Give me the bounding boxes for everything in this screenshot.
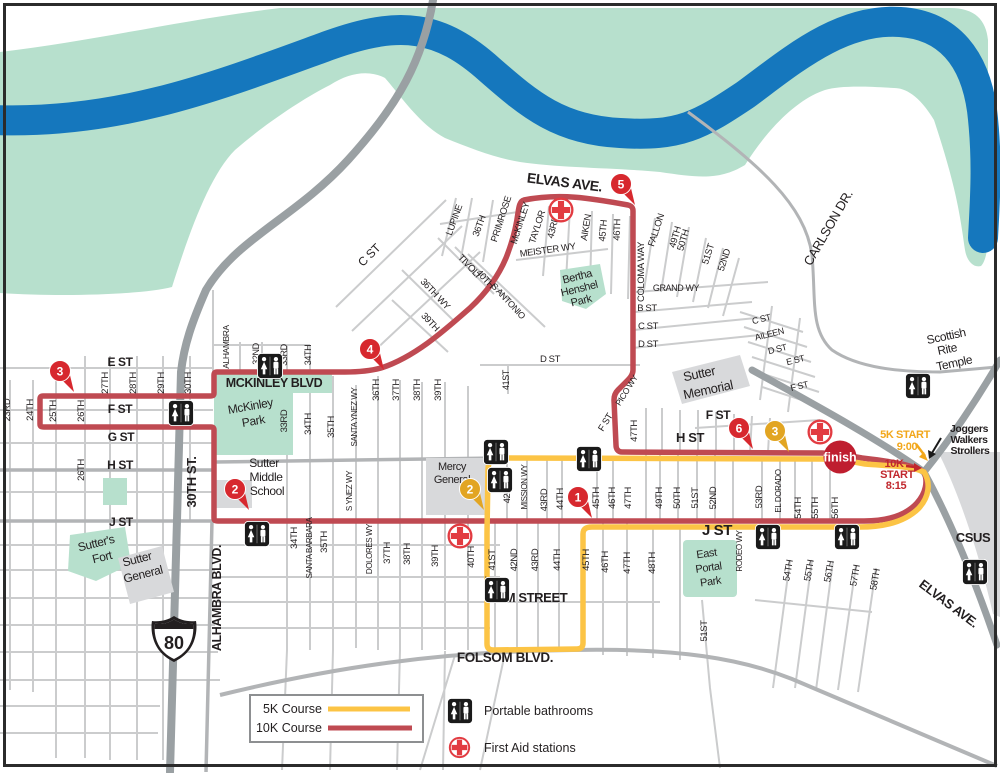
street-label: H ST xyxy=(676,430,704,445)
sutter-middle-label: Middle xyxy=(250,470,284,484)
legend-restroom-icon xyxy=(447,698,472,723)
map-canvas: ELVAS AVE.CARLSON DR.ScottishRiteTempleJ… xyxy=(0,0,1000,773)
folsom-blvd-label: FOLSOM BLVD. xyxy=(457,650,553,665)
street-label: G ST xyxy=(108,430,135,444)
street-label: D ST xyxy=(540,354,561,365)
race-course-map: ELVAS AVE.CARLSON DR.ScottishRiteTempleJ… xyxy=(0,0,1000,773)
street-label: 45TH xyxy=(597,219,610,242)
sutter-middle-label: School xyxy=(250,484,284,498)
street-label: 55TH xyxy=(810,497,821,519)
street-label: SANTA BARBARA xyxy=(305,516,314,578)
restroom-icon xyxy=(905,373,930,398)
street-label: 50TH xyxy=(672,487,683,509)
start-5k-label: 5K START xyxy=(880,429,930,441)
street-label: 47TH xyxy=(623,487,634,509)
street-label: 44TH xyxy=(555,488,566,510)
street-label: 46TH xyxy=(607,487,618,509)
street-label: 45TH xyxy=(591,487,602,509)
street-label: B ST xyxy=(637,303,657,314)
street-label: RODEO WY xyxy=(735,529,744,571)
street-label: 30TH xyxy=(183,372,194,394)
street-label: 43RD xyxy=(530,548,541,571)
street-label: ALHAMBRA xyxy=(221,324,231,368)
csus-label: CSUS xyxy=(956,530,991,545)
finish-marker: finish xyxy=(823,441,856,474)
street-label: 39TH xyxy=(430,545,441,567)
street-label: H ST xyxy=(107,458,134,472)
sutter-middle-label: Sutter xyxy=(249,456,279,470)
street-label: EL DORADO xyxy=(774,469,783,512)
first-aid-icon xyxy=(809,421,832,444)
finish-label: finish xyxy=(823,451,856,465)
pin-number: 6 xyxy=(736,422,743,436)
m-street-label: M STREET xyxy=(505,590,568,605)
street-label: 34TH xyxy=(289,527,300,549)
street-label: 47TH xyxy=(622,552,633,574)
street-label: 51ST xyxy=(699,620,710,642)
street-label: 53RD xyxy=(754,485,765,508)
street-label: 35TH xyxy=(319,531,330,553)
restroom-icon xyxy=(576,446,601,471)
street-label: 26TH xyxy=(76,459,87,481)
restroom-icon xyxy=(244,521,269,546)
street-label: J ST xyxy=(702,522,732,539)
street-label: 36TH xyxy=(371,379,382,401)
street-label: S YNEZ WY xyxy=(345,470,354,511)
legend-firstaid-label: First Aid stations xyxy=(484,741,576,755)
street-label: C ST xyxy=(638,321,659,332)
street-label: 49TH xyxy=(654,487,665,509)
start-10k-time: 8:15 xyxy=(886,480,907,492)
street-label: 37TH xyxy=(391,379,402,401)
first-aid-icon xyxy=(550,199,573,222)
street-label: ALHAMBRA BLVD. xyxy=(210,545,224,651)
joggers-note: Strollers xyxy=(951,445,991,457)
start-5k-time: 9:00 xyxy=(897,441,918,453)
street-label: 34TH xyxy=(303,413,314,435)
street-label: 30TH ST. xyxy=(184,457,199,508)
restroom-icon xyxy=(755,524,780,549)
street-label: SANTA YNEZ WY xyxy=(350,386,359,446)
street-label: 43RD xyxy=(539,488,550,511)
legend-10k-label: 10K Course xyxy=(256,721,322,735)
street-label: 38TH xyxy=(412,379,423,401)
legend-bathrooms-label: Portable bathrooms xyxy=(484,704,593,718)
street-label: DOLORES WY xyxy=(365,523,374,574)
street-label: F ST xyxy=(706,408,731,422)
restroom-icon xyxy=(834,524,859,549)
street-label: 56TH xyxy=(830,497,841,519)
street-label: 51ST xyxy=(690,487,701,509)
street-label: 42ND xyxy=(509,548,520,571)
restroom-icon xyxy=(484,577,509,602)
street-label: 46TH xyxy=(600,551,611,573)
street-label: 34TH xyxy=(303,345,313,365)
street-label: 33RD xyxy=(279,409,290,432)
restroom-icon xyxy=(257,353,282,378)
street-label: J ST xyxy=(109,515,134,529)
small-park xyxy=(103,478,127,505)
street-label: MISSION WY xyxy=(520,463,529,509)
street-label: 37TH xyxy=(382,542,393,564)
street-label: 40TH xyxy=(466,546,477,568)
street-label: 26TH xyxy=(76,400,87,422)
street-label: D ST xyxy=(638,339,659,350)
mercy-general-label: Mercy xyxy=(438,461,467,473)
street-label: 41ST xyxy=(501,369,511,390)
restroom-icon xyxy=(483,439,508,464)
street-label: GRAND WY xyxy=(653,283,700,293)
legend-firstaid-icon xyxy=(450,738,469,757)
restroom-icon xyxy=(487,467,512,492)
pin-number: 5 xyxy=(618,178,625,192)
street-label: 45TH xyxy=(581,549,592,571)
pin-number: 1 xyxy=(575,491,582,505)
street-label: E ST xyxy=(107,355,133,369)
pin-number: 3 xyxy=(57,365,64,379)
street-label: 27TH xyxy=(100,372,111,394)
street-label: 41ST xyxy=(487,549,498,571)
street-label: 24TH xyxy=(25,399,36,421)
shield-number: 80 xyxy=(164,633,184,653)
pin-number: 4 xyxy=(367,343,374,357)
street-label: F ST xyxy=(108,402,133,416)
street-label: 54TH xyxy=(793,497,804,519)
legend-5k-label: 5K Course xyxy=(263,702,322,716)
street-label: 35TH xyxy=(326,416,337,438)
street-label: 25TH xyxy=(48,400,59,422)
street-label: 39TH xyxy=(433,379,444,401)
street-label: 52ND xyxy=(708,486,719,509)
pin-number: 2 xyxy=(232,483,239,497)
first-aid-icon xyxy=(449,525,472,548)
street-label: 46TH xyxy=(612,218,624,241)
street-label: 38TH xyxy=(402,543,413,565)
street-label: 44TH xyxy=(552,549,563,571)
pin-number: 3 xyxy=(772,425,779,439)
street-label: 29TH xyxy=(156,372,167,394)
restroom-icon xyxy=(168,400,193,425)
street-label: COLOMA WAY xyxy=(636,241,647,302)
pin-number: 2 xyxy=(467,483,474,497)
street-label: 47TH xyxy=(629,420,640,442)
street-label: 48TH xyxy=(647,552,658,574)
restroom-icon xyxy=(962,559,987,584)
street-label: 28TH xyxy=(128,372,139,394)
